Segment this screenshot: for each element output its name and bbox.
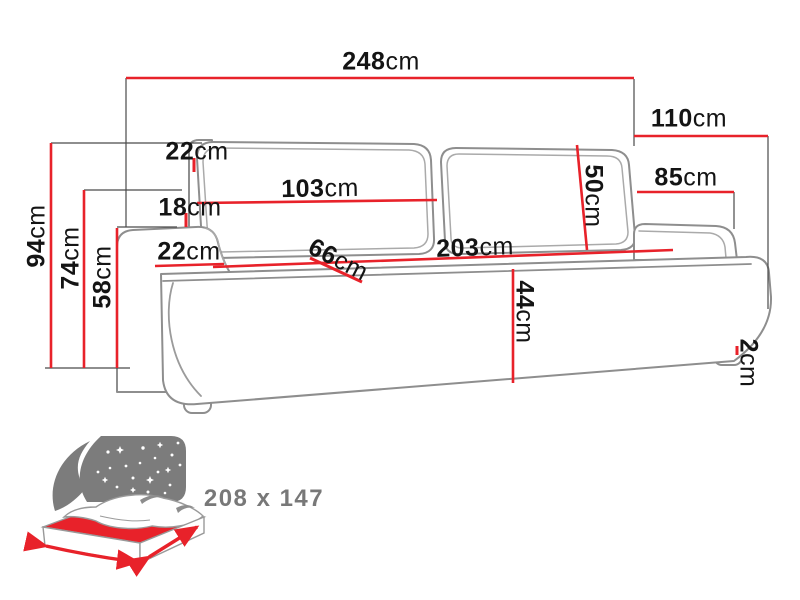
dimension-unit: cm xyxy=(187,194,221,222)
dimension-label-total-width: 248cm xyxy=(342,50,420,75)
dimension-value: 50 xyxy=(580,164,608,193)
dimension-unit: cm xyxy=(194,138,228,166)
dimension-label-foot-height: 2cm xyxy=(736,339,761,388)
dimension-unit: cm xyxy=(683,164,717,192)
dimension-label-armrest-width: 22cm xyxy=(157,240,220,265)
dimension-value: 22 xyxy=(157,238,186,266)
dimension-label-total-height: 94cm xyxy=(25,204,50,267)
dimension-value: 110 xyxy=(651,105,693,133)
dimension-label-armrest-depth: 85cm xyxy=(654,166,717,191)
dimension-label-total-depth: 110cm xyxy=(651,107,727,132)
dimension-value: 2 xyxy=(735,339,763,353)
dimension-unit: cm xyxy=(23,204,51,238)
dimension-unit: cm xyxy=(385,48,419,76)
dimension-unit: cm xyxy=(57,226,85,260)
dimension-value: 22 xyxy=(165,138,194,166)
dimension-unit: cm xyxy=(479,232,514,261)
dimension-value: 248 xyxy=(342,48,385,76)
furniture-dimension-diagram: 248cm 110cm 85cm 94cm 74cm 58cm 22cm 18c… xyxy=(0,0,800,600)
diagram-drawing xyxy=(0,0,800,600)
dimension-unit: cm xyxy=(186,238,220,266)
dimension-unit: cm xyxy=(693,105,727,133)
dimension-unit: cm xyxy=(324,174,359,203)
dimension-label-armrest-height: 58cm xyxy=(91,245,116,308)
dimension-value: 94 xyxy=(23,239,51,268)
dimension-unit: cm xyxy=(580,193,608,227)
dimension-value: 44 xyxy=(511,280,539,309)
dimension-label-backrest-height: 74cm xyxy=(59,226,84,289)
dimension-value: 103 xyxy=(281,174,325,203)
dimension-label-cushion-height: 50cm xyxy=(581,164,606,227)
sofa-bed-function-icon xyxy=(43,436,204,563)
dimension-value: 85 xyxy=(654,164,683,192)
dimension-value: 58 xyxy=(89,280,117,309)
dimension-value: 18 xyxy=(158,194,187,222)
dimension-unit: cm xyxy=(89,245,117,279)
dimension-unit: cm xyxy=(735,353,763,387)
sleeping-area-size-label: 208 x 147 xyxy=(204,485,324,513)
dimension-value: 74 xyxy=(57,261,85,290)
dimension-label-cushion-top-gap: 22cm xyxy=(165,140,228,165)
dimension-label-back-gap: 18cm xyxy=(158,196,221,221)
dimension-label-seat-width: 203cm xyxy=(436,234,514,262)
dimension-label-cushion-width: 103cm xyxy=(281,176,359,202)
dimension-label-seat-height: 44cm xyxy=(512,280,537,343)
dimension-value: 203 xyxy=(436,233,480,262)
dimension-unit: cm xyxy=(511,309,539,343)
sofa-armrest-right xyxy=(634,224,737,260)
